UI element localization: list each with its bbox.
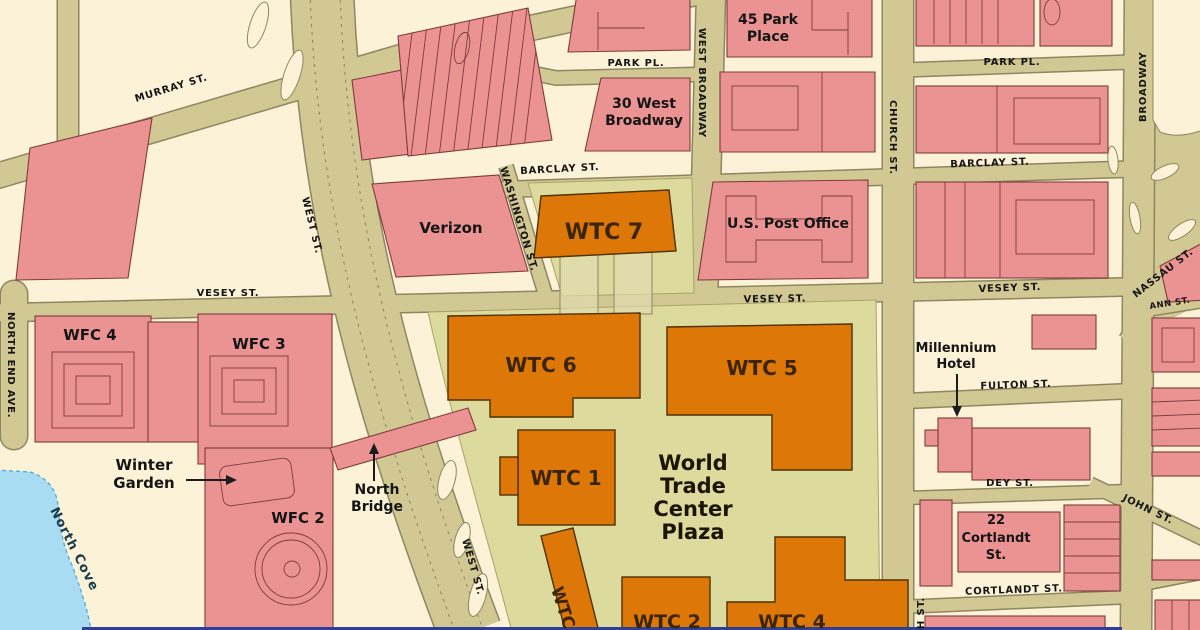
wtc-area-map: MURRAY ST. PARK PL. PARK PL. BARCLAY ST.… <box>0 0 1200 630</box>
map-canvas: MURRAY ST. PARK PL. PARK PL. BARCLAY ST.… <box>0 0 1200 630</box>
label-north-bridge-l1: North <box>355 482 400 498</box>
building-block <box>1152 388 1200 446</box>
building-block <box>916 86 1108 153</box>
street-label-dey: DEY ST. <box>986 478 1034 489</box>
street-label-vesey-e: VESEY ST. <box>978 282 1041 295</box>
label-wtc4: WTC 4 <box>758 611 826 630</box>
building-block <box>925 430 938 446</box>
building-wfc2-winter-garden <box>205 448 333 630</box>
label-plaza-l1: World <box>658 451 727 475</box>
label-wfc2: WFC 2 <box>271 509 324 527</box>
label-wtc2: WTC 2 <box>633 611 701 630</box>
building-block <box>925 616 1105 628</box>
building-wtc1-annex <box>500 457 518 495</box>
building-block <box>1155 600 1200 630</box>
street-label-north-end-ave: NORTH END AVE. <box>5 312 16 418</box>
building-block <box>1040 0 1112 46</box>
label-22cortlandt-l2: Cortlandt <box>961 531 1030 546</box>
building-block <box>1152 452 1200 476</box>
city-hall-park <box>1153 0 1200 135</box>
street-label-park-pl-w: PARK PL. <box>608 58 665 69</box>
street-label-church-s: CHURCH ST. <box>916 597 927 630</box>
building-block <box>972 428 1090 480</box>
label-wtc5: WTC 5 <box>726 356 797 380</box>
building-block <box>920 500 952 586</box>
label-verizon: Verizon <box>419 219 482 237</box>
building-block <box>1152 560 1200 580</box>
label-north-bridge-l2: Bridge <box>351 499 403 515</box>
label-winter-garden-l1: Winter <box>115 456 173 474</box>
label-post-office: U.S. Post Office <box>727 216 849 232</box>
building-block <box>568 0 690 52</box>
label-plaza-l2: Trade <box>660 474 726 498</box>
label-millennium-l2: Hotel <box>936 357 975 372</box>
label-wfc3: WFC 3 <box>232 335 285 353</box>
label-22cortlandt-l1: 22 <box>987 513 1005 528</box>
label-30wb-l2: Broadway <box>605 113 683 129</box>
label-30wb-l1: 30 West <box>612 96 676 112</box>
label-45-park-l2: Place <box>747 29 789 45</box>
street-label-broadway: BROADWAY <box>1138 51 1149 122</box>
building-block <box>1064 505 1120 591</box>
label-plaza-l3: Center <box>653 497 733 521</box>
street-label-church-n: CHURCH ST. <box>887 100 898 175</box>
label-winter-garden-l2: Garden <box>113 474 174 492</box>
building-block <box>1032 315 1096 349</box>
label-wtc7: WTC 7 <box>565 220 643 245</box>
label-22cortlandt-l3: St. <box>986 548 1007 563</box>
building-millennium-hotel <box>938 418 972 472</box>
street-label-park-pl-e: PARK PL. <box>984 57 1041 68</box>
building-block <box>720 72 875 152</box>
label-wtc6: WTC 6 <box>505 353 576 377</box>
building-block <box>1152 318 1200 372</box>
label-wfc4: WFC 4 <box>63 326 116 344</box>
label-45-park-l1: 45 Park <box>738 12 799 28</box>
label-millennium-l1: Millennium <box>916 341 997 356</box>
street-label-vesey-w: VESEY ST. <box>197 288 260 299</box>
label-plaza-l4: Plaza <box>661 520 724 544</box>
wfc-connector <box>148 322 200 442</box>
street-label-west-broadway: WEST BROADWAY <box>696 28 707 138</box>
label-wtc1: WTC 1 <box>530 466 601 490</box>
street-label-vesey-c: VESEY ST. <box>743 293 806 305</box>
